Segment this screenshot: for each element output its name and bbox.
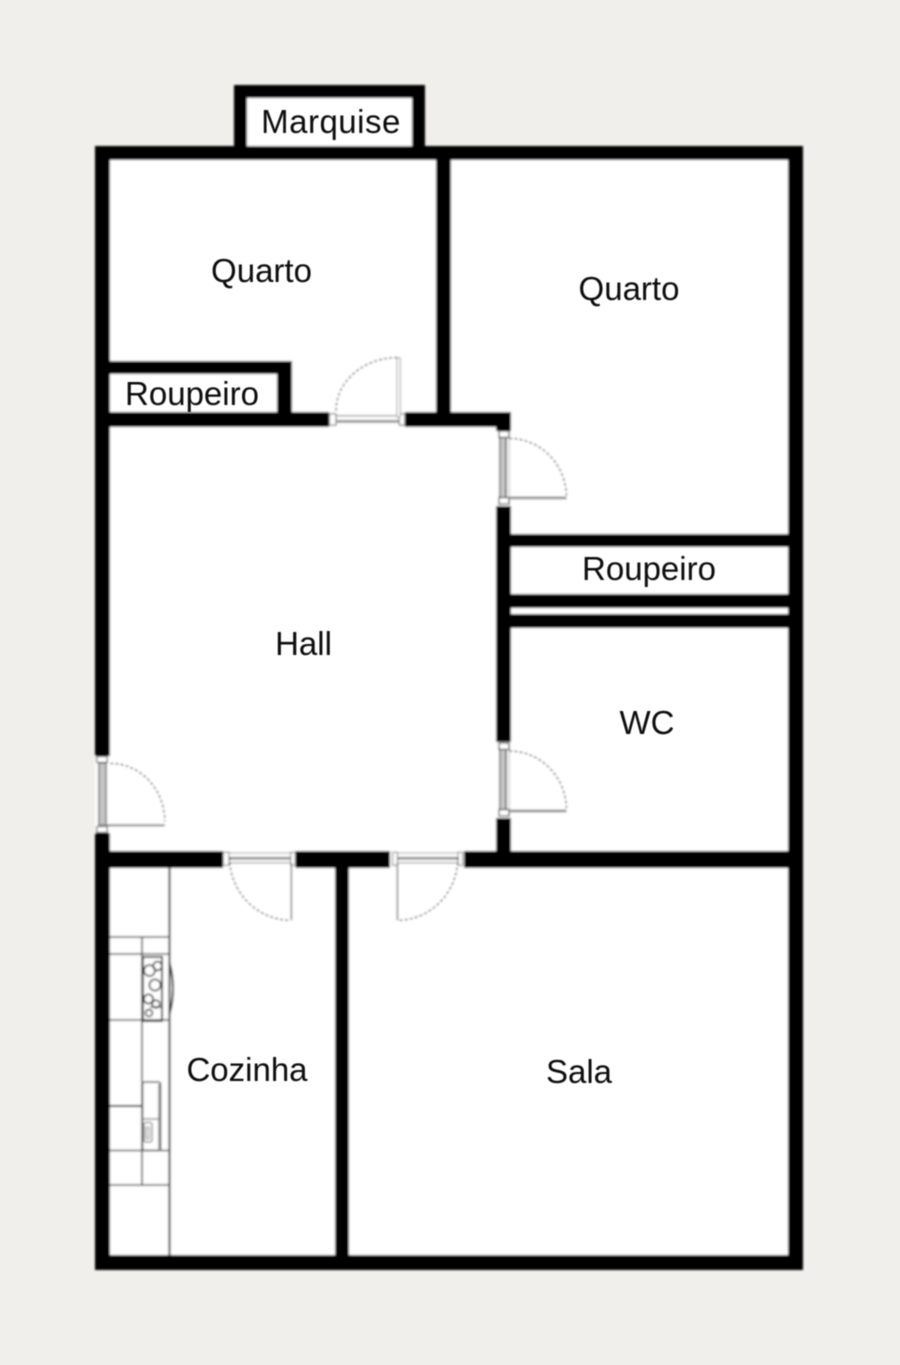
svg-text:Hall: Hall bbox=[275, 625, 332, 662]
svg-text:Quarto: Quarto bbox=[579, 270, 680, 307]
svg-text:Marquise: Marquise bbox=[261, 103, 401, 140]
svg-text:Roupeiro: Roupeiro bbox=[125, 375, 259, 412]
svg-text:Cozinha: Cozinha bbox=[186, 1051, 308, 1088]
svg-text:Sala: Sala bbox=[546, 1053, 613, 1090]
svg-text:Quarto: Quarto bbox=[211, 252, 312, 289]
svg-text:WC: WC bbox=[620, 704, 675, 741]
svg-text:Roupeiro: Roupeiro bbox=[582, 550, 716, 587]
